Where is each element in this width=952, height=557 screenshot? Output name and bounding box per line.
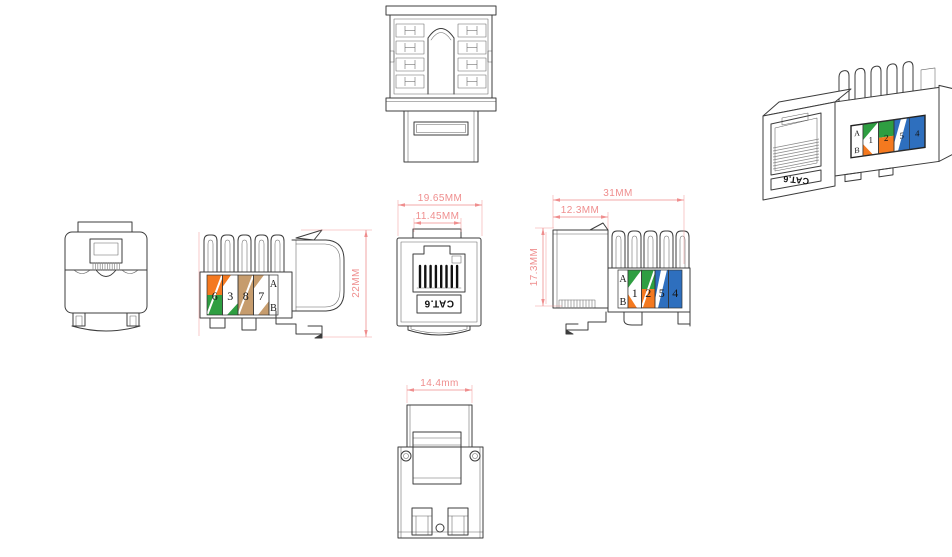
dim-rear-depth: 12.3MM bbox=[553, 205, 608, 229]
dim-height-text: 22MM bbox=[351, 268, 362, 297]
projection-lines bbox=[199, 232, 546, 336]
technical-drawing-canvas: 6 3 8 7 A B bbox=[0, 0, 952, 557]
dim-side-height-text: 17.3MM bbox=[529, 248, 540, 287]
dim-side-height: 17.3MM bbox=[529, 228, 562, 306]
dim-port-width: 11.45MM bbox=[414, 211, 461, 232]
dim-front-width-text: 19.65MM bbox=[418, 193, 463, 204]
dimension-layer: 19.65MM 11.45MM 22MM 31MM bbox=[0, 0, 952, 557]
dim-port-width-text: 11.45MM bbox=[416, 211, 460, 222]
dim-length: 31MM bbox=[553, 188, 684, 264]
dim-bottom-width-text: 14.4mm bbox=[420, 378, 459, 389]
dim-rear-depth-text: 12.3MM bbox=[561, 205, 600, 216]
dim-bottom-width: 14.4mm bbox=[407, 378, 472, 403]
dim-length-text: 31MM bbox=[603, 188, 632, 199]
dim-height: 22MM bbox=[301, 230, 372, 337]
